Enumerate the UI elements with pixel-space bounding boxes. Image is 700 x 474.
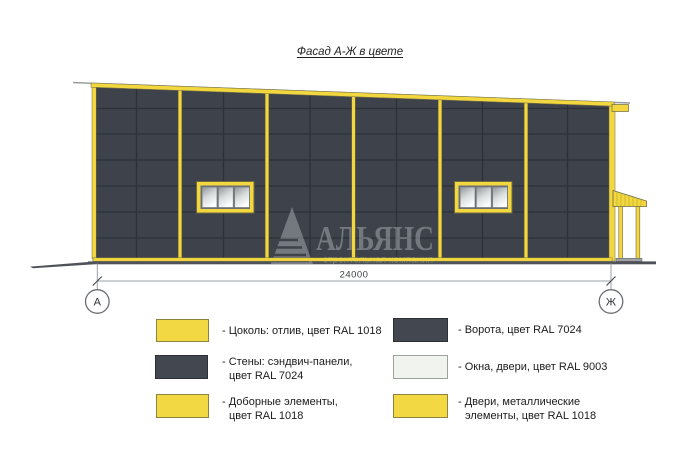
legend-swatch xyxy=(156,394,209,418)
legend-label: - Окна, двери, цвет RAL 9003 xyxy=(458,355,607,379)
watermark-company: АЛЬЯНС xyxy=(316,219,434,258)
legend-swatch xyxy=(393,318,448,342)
roof-overhang-right xyxy=(612,105,629,112)
legend-swatch xyxy=(156,319,209,342)
window-left xyxy=(197,182,255,214)
facade-drawing: АЛЬЯНС строительная компания xyxy=(0,0,700,316)
legend-item: - Стены: сэндвич-панели, цвет RAL 7024 xyxy=(155,355,352,383)
axis-marker-zh: Ж xyxy=(599,290,623,314)
dimension: 24000 А Ж xyxy=(86,264,623,314)
axis-label-zh: Ж xyxy=(606,297,616,309)
axis-label-a: А xyxy=(94,297,102,309)
entrance-canopy xyxy=(613,191,647,262)
legend-label: - Стены: сэндвич-панели, цвет RAL 7024 xyxy=(222,355,352,383)
legend-item: - Ворота, цвет RAL 7024 xyxy=(393,318,582,342)
legend-item: - Цоколь: отлив, цвет RAL 1018 xyxy=(156,319,382,342)
axis-marker-a: А xyxy=(86,290,110,314)
legend-swatch xyxy=(393,394,448,418)
legend-item: - Доборные элементы, цвет RAL 1018 xyxy=(156,394,338,423)
legend-swatch xyxy=(393,355,448,379)
legend-label: - Цоколь: отлив, цвет RAL 1018 xyxy=(222,319,382,342)
entrance-step xyxy=(616,258,642,261)
legend-label: - Ворота, цвет RAL 7024 xyxy=(458,318,582,342)
legend-item: - Окна, двери, цвет RAL 9003 xyxy=(393,355,607,379)
legend-item: - Двери, металлические элементы, цвет RA… xyxy=(393,394,596,423)
dimension-value: 24000 xyxy=(340,270,369,281)
legend-label: - Доборные элементы, цвет RAL 1018 xyxy=(222,395,338,423)
canopy-post xyxy=(636,207,640,261)
canopy-post xyxy=(619,207,623,261)
window-right xyxy=(455,182,513,214)
legend-label: - Двери, металлические элементы, цвет RA… xyxy=(458,395,596,423)
legend-swatch xyxy=(155,355,208,379)
